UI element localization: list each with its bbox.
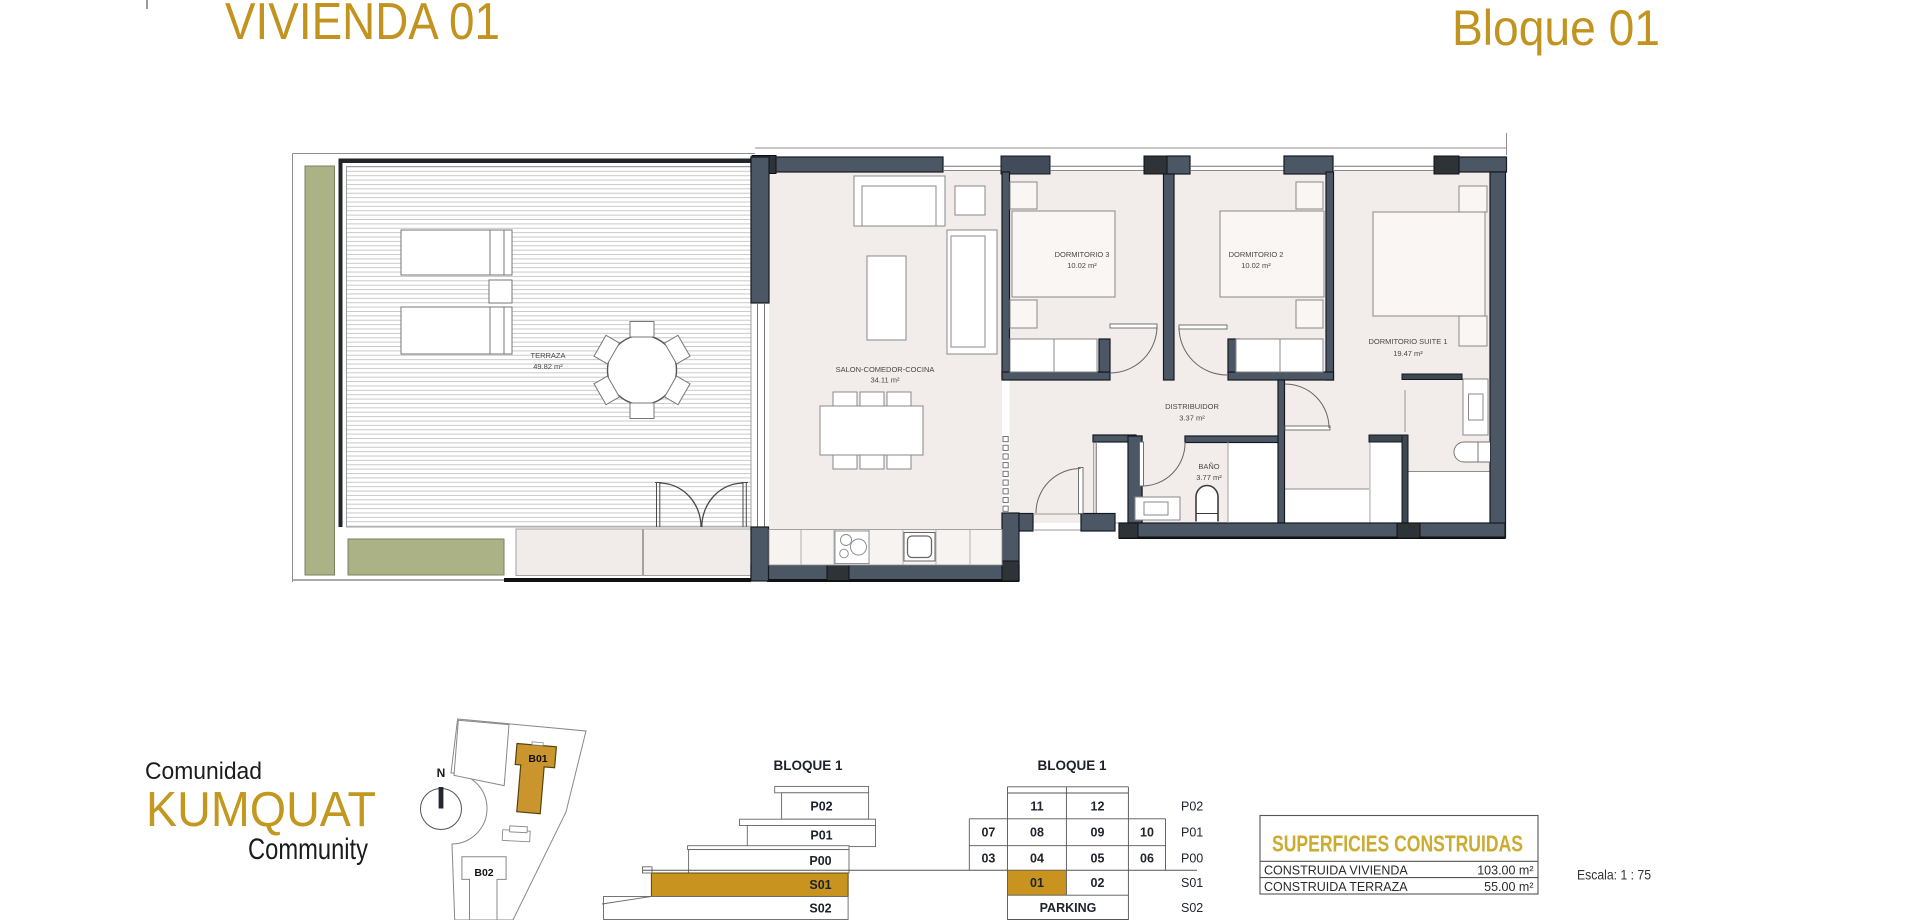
svg-text:09: 09 (1091, 826, 1105, 840)
svg-text:Community: Community (248, 833, 368, 866)
svg-text:10: 10 (1140, 826, 1154, 840)
svg-text:P01: P01 (1181, 826, 1203, 840)
svg-text:B02: B02 (474, 867, 493, 879)
svg-text:BLOQUE 1: BLOQUE 1 (1037, 758, 1107, 773)
svg-text:49.82 m²: 49.82 m² (533, 362, 563, 371)
svg-text:B01: B01 (528, 753, 547, 765)
svg-text:KUMQUAT: KUMQUAT (146, 783, 376, 837)
svg-text:08: 08 (1030, 826, 1044, 840)
svg-text:Escala: 1 : 75: Escala: 1 : 75 (1577, 867, 1651, 883)
svg-text:BAÑO: BAÑO (1198, 462, 1219, 471)
svg-text:Comunidad: Comunidad (145, 758, 262, 785)
svg-text:P00: P00 (1181, 851, 1203, 865)
svg-text:05: 05 (1091, 851, 1105, 865)
svg-text:DORMITORIO SUITE 1: DORMITORIO SUITE 1 (1368, 337, 1447, 346)
svg-text:CONSTRUIDA TERRAZA: CONSTRUIDA TERRAZA (1264, 880, 1408, 894)
svg-text:DORMITORIO 2: DORMITORIO 2 (1229, 250, 1284, 259)
svg-text:CONSTRUIDA VIVIENDA: CONSTRUIDA VIVIENDA (1264, 864, 1408, 878)
svg-text:04: 04 (1030, 851, 1044, 865)
svg-text:34.11 m²: 34.11 m² (870, 376, 900, 385)
svg-text:03: 03 (981, 851, 995, 865)
svg-text:06: 06 (1140, 851, 1154, 865)
svg-text:VIVIENDA 01: VIVIENDA 01 (225, 0, 500, 51)
svg-text:P02: P02 (810, 800, 832, 814)
svg-text:P02: P02 (1181, 800, 1203, 814)
svg-text:S01: S01 (809, 878, 831, 892)
svg-text:TERRAZA: TERRAZA (530, 351, 565, 360)
svg-text:19.47 m²: 19.47 m² (1393, 349, 1423, 358)
svg-text:10.02 m²: 10.02 m² (1241, 261, 1271, 270)
svg-text:3.37 m²: 3.37 m² (1179, 414, 1205, 423)
svg-text:11: 11 (1030, 800, 1043, 814)
svg-text:01: 01 (1030, 876, 1044, 890)
svg-text:S01: S01 (1181, 876, 1203, 890)
svg-text:S02: S02 (1181, 901, 1203, 915)
svg-text:10.02 m²: 10.02 m² (1067, 261, 1097, 270)
svg-text:P01: P01 (810, 829, 832, 843)
svg-text:S02: S02 (809, 902, 831, 916)
svg-text:SUPERFICIES CONSTRUIDAS: SUPERFICIES CONSTRUIDAS (1272, 831, 1523, 857)
svg-text:02: 02 (1091, 876, 1105, 890)
svg-text:N: N (437, 766, 446, 780)
svg-text:Bloque 01: Bloque 01 (1452, 0, 1660, 56)
svg-text:3.77 m²: 3.77 m² (1196, 473, 1222, 482)
svg-text:PARKING: PARKING (1040, 901, 1097, 915)
svg-text:DORMITORIO 3: DORMITORIO 3 (1055, 250, 1110, 259)
svg-text:55.00 m²: 55.00 m² (1484, 880, 1533, 894)
svg-text:SALON-COMEDOR-COCINA: SALON-COMEDOR-COCINA (836, 365, 935, 374)
svg-text:103.00 m²: 103.00 m² (1477, 864, 1533, 878)
svg-text:07: 07 (981, 826, 995, 840)
svg-text:DISTRIBUIDOR: DISTRIBUIDOR (1165, 402, 1219, 411)
svg-text:BLOQUE 1: BLOQUE 1 (773, 758, 843, 773)
svg-text:12: 12 (1091, 800, 1105, 814)
svg-text:P00: P00 (809, 854, 831, 868)
